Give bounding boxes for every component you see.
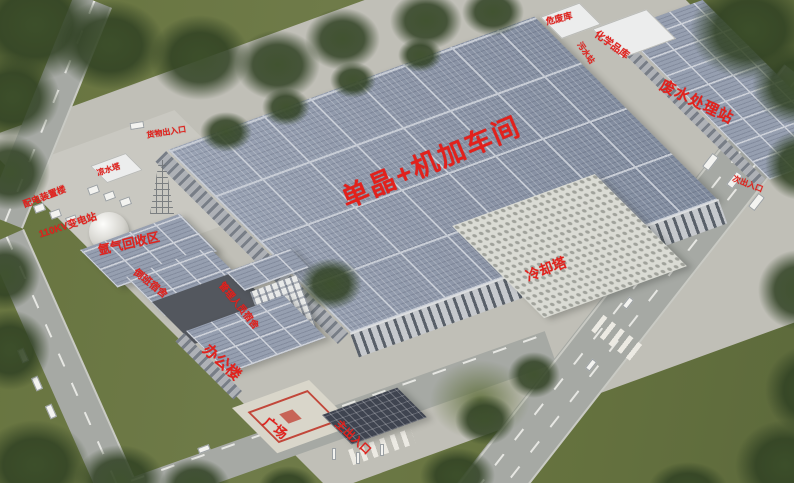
tree-cluster	[305, 8, 380, 70]
tree-cluster	[455, 395, 515, 445]
van	[45, 404, 57, 420]
tree-cluster	[262, 88, 310, 126]
tree-cluster	[648, 462, 728, 483]
tree-cluster	[735, 420, 794, 483]
tree-cluster	[398, 38, 442, 72]
tree-cluster	[330, 62, 376, 98]
tree-cluster	[300, 258, 362, 310]
tree-cluster	[200, 112, 252, 152]
gate-pillar	[332, 448, 336, 460]
tree-cluster	[55, 0, 165, 90]
gate-pillar	[380, 444, 384, 456]
factory-aerial-rendering: 单晶+机加车间 废水处理站 冷却塔 危废库 化学品库 污水站 货物出入口 配电装…	[0, 0, 794, 483]
gate-pillar	[356, 452, 360, 464]
tree-cluster	[508, 352, 560, 398]
